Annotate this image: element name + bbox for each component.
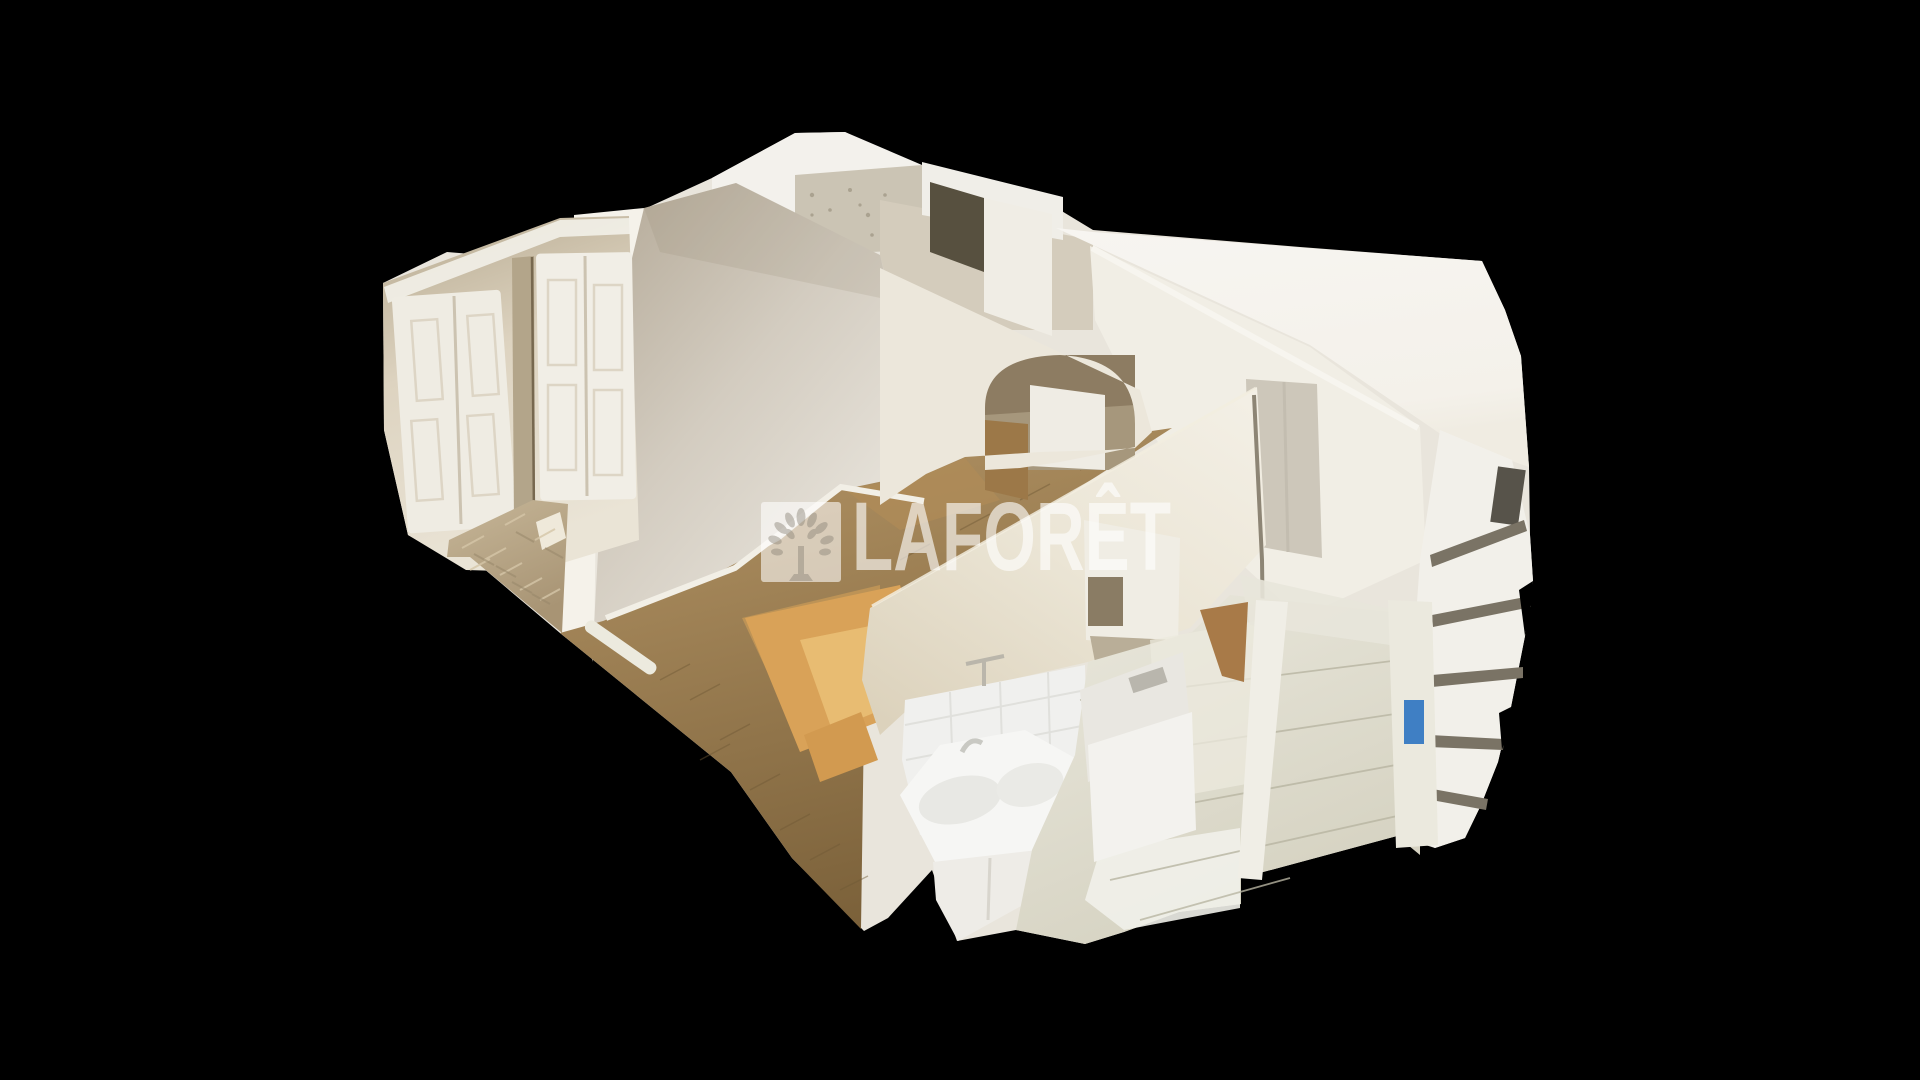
svg-text:LAFORÊT: LAFORÊT: [852, 482, 1171, 591]
